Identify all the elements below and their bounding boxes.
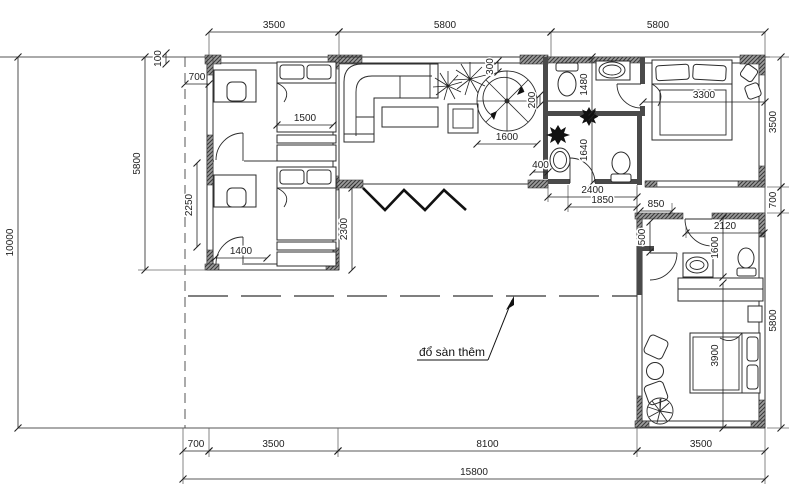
dimension-room2-2250: 2250	[184, 160, 201, 251]
annotation-arrow	[506, 296, 514, 310]
dimension-bottom-8100: 8100	[335, 439, 641, 455]
dimension-label: 1480	[579, 73, 590, 96]
dimension-left-5800: 5800	[132, 54, 149, 274]
dimension-stair-200: 200	[527, 91, 544, 108]
dimension-bottom-15800: 15800	[180, 467, 769, 483]
plant-icon	[647, 398, 673, 424]
dimension-wc-1640: 1640	[579, 114, 596, 187]
dimension-label: 3500	[263, 20, 286, 31]
nightstand	[748, 306, 762, 322]
dimension-label: 5800	[132, 152, 143, 175]
dimension-label: 1400	[230, 246, 253, 257]
wardrobe	[678, 278, 763, 301]
toilet-tank	[556, 63, 578, 71]
dimension-label: 1600	[710, 236, 721, 259]
bench	[277, 242, 336, 250]
dimension-left-10000: 10000	[5, 54, 22, 432]
dimension-label: 700	[768, 191, 779, 208]
slab-annotation-text: đổ sàn thêm	[419, 345, 485, 359]
dimension-label: 700	[188, 439, 205, 450]
dimension-label: 3500	[768, 110, 779, 133]
dimension-label: 400	[532, 160, 549, 171]
planter-box	[448, 104, 478, 133]
dimension-label: 2250	[184, 193, 195, 216]
wc-toilet-icon	[612, 152, 630, 174]
floor-plan-drawing: đổ sàn thêm 3500580058003500700580070035…	[0, 0, 800, 500]
dimension-label: 10000	[5, 228, 16, 256]
dimension-label: 2300	[339, 217, 350, 240]
coffee-table	[382, 107, 438, 127]
dimension-label: 1600	[496, 132, 519, 143]
folding-door	[363, 188, 466, 210]
dimension-label: 5800	[647, 20, 670, 31]
dimension-label: 700	[189, 72, 206, 83]
dimension-label: 300	[485, 58, 496, 75]
dimension-bottom-3500-right: 3500	[634, 439, 769, 455]
dimension-gap-850: 850	[637, 199, 676, 215]
dimension-label: 3300	[693, 90, 716, 101]
dimension-room2-1400: 1400	[212, 246, 271, 262]
dimension-stair-1600: 1600	[474, 132, 541, 148]
dimension-label: 850	[648, 199, 665, 210]
dimension-label: 100	[153, 50, 164, 67]
dimension-label: 8100	[476, 439, 499, 450]
bedroom2-furniture	[643, 248, 763, 424]
dimension-top-left-3500: 3500	[206, 20, 343, 36]
dimension-label: 3500	[262, 439, 285, 450]
chair	[227, 188, 246, 207]
dimension-bottom-3500-left: 3500	[206, 439, 342, 455]
dimension-label: 1850	[591, 195, 614, 206]
dimension-wall-400: 400	[530, 160, 552, 176]
dimension-label: 2120	[714, 221, 737, 232]
dimension-top-right-5800: 5800	[548, 20, 769, 36]
dimension-label: 1500	[294, 113, 317, 124]
chair	[643, 334, 670, 361]
dimension-label: 5800	[768, 309, 779, 332]
dimension-label: 5800	[434, 20, 457, 31]
bench	[277, 135, 336, 143]
chair	[643, 380, 669, 406]
dimension-right-3500: 3500	[768, 54, 785, 191]
dimension-stair-300: 300	[485, 58, 502, 76]
wardrobe	[277, 252, 336, 266]
wardrobe	[277, 145, 336, 161]
dimension-label: 3900	[710, 344, 721, 367]
dimension-right-5800: 5800	[768, 210, 785, 432]
armchair	[739, 63, 758, 82]
dimension-offset-100: 100	[153, 50, 170, 68]
dimension-wing-2300: 2300	[339, 185, 356, 274]
round-table	[647, 363, 664, 380]
dimension-top-mid-5800: 5800	[336, 20, 555, 36]
floor-plan-canvas: đổ sàn thêm 3500580058003500700580070035…	[0, 0, 800, 500]
dimension-label: 500	[637, 228, 648, 245]
toilet-icon	[738, 248, 754, 268]
chair	[227, 82, 246, 101]
dimension-label: 200	[527, 91, 538, 108]
dimension-label: 1640	[579, 138, 590, 161]
dimension-bedroom2-2120: 2120	[683, 221, 768, 237]
dimension-label: 3500	[690, 439, 713, 450]
dimension-label: 15800	[460, 467, 488, 478]
slab-annotation: đổ sàn thêm	[417, 296, 514, 360]
bedroom-small-1	[214, 62, 336, 161]
sink-icon	[686, 257, 708, 273]
living-room-furniture	[344, 62, 486, 142]
toilet-icon	[558, 72, 576, 96]
